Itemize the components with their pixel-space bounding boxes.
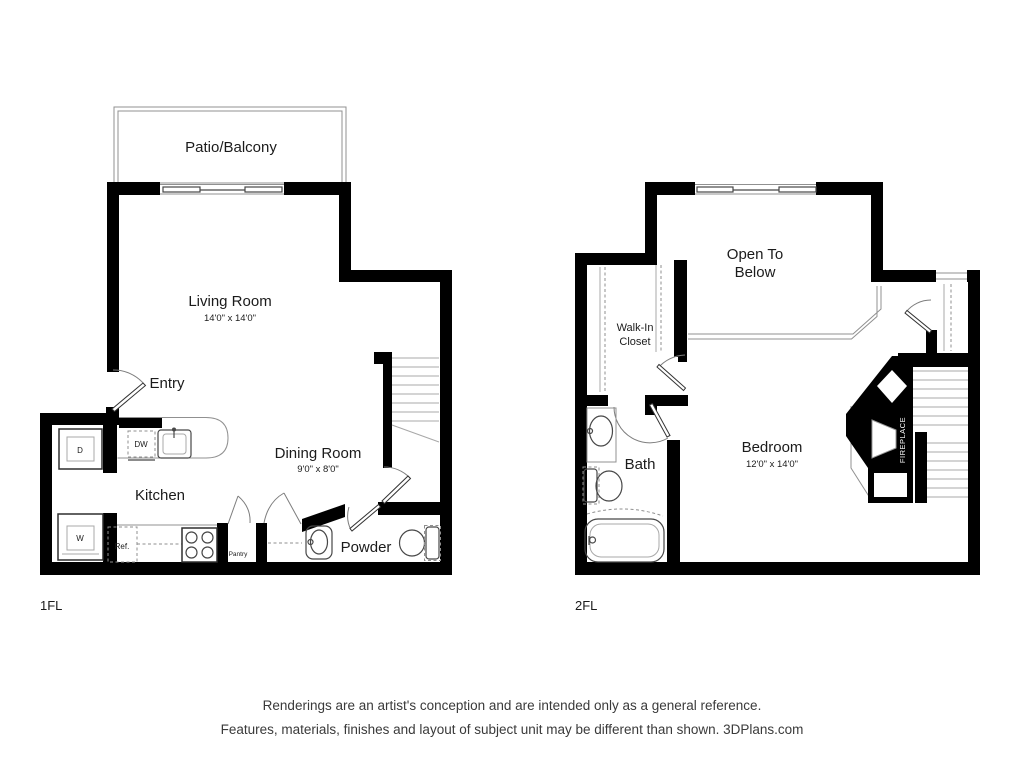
stairs-door xyxy=(382,467,411,504)
entry-door xyxy=(112,370,146,412)
floorplan-page: DW D W Ref. xyxy=(0,0,1024,768)
living-room-label: Living Room xyxy=(188,293,271,310)
walls-1fl xyxy=(40,182,452,575)
footer-line-2: Features, materials, finishes and layout… xyxy=(221,722,804,737)
sliding-door xyxy=(160,185,284,195)
dishwasher: DW xyxy=(128,431,155,457)
powder-door xyxy=(348,505,381,532)
kitchen-sink-icon xyxy=(158,428,191,459)
kitchen-label: Kitchen xyxy=(135,487,185,504)
powder-sink-icon xyxy=(306,526,332,559)
dryer: D xyxy=(59,429,102,469)
dishwasher-label: DW xyxy=(134,440,148,449)
pantry-door xyxy=(228,496,250,524)
walk-in-closet-label-2: Closet xyxy=(619,336,650,348)
dining-room-label: Dining Room xyxy=(275,445,362,462)
open-to-below-label-2: Below xyxy=(735,264,776,281)
patio-label: Patio/Balcony xyxy=(185,139,277,156)
bath-sink-icon xyxy=(587,408,616,462)
washer: W xyxy=(58,514,103,560)
floorplan-2fl: FIREPLACE Open To Below Walk-In Closet B… xyxy=(575,182,980,613)
refrigerator-label: Ref. xyxy=(115,542,130,551)
fireplace-label: FIREPLACE xyxy=(898,417,907,463)
open-to-below-label-1: Open To xyxy=(727,246,783,263)
pantry-label: Pantry xyxy=(229,551,249,558)
bedroom-closet-rods xyxy=(944,284,951,351)
floorplan-1fl: DW D W Ref. xyxy=(40,107,452,613)
powder-label: Powder xyxy=(341,539,392,556)
footer-disclaimer: Renderings are an artist's conception an… xyxy=(221,698,804,737)
footer-line-1: Renderings are an artist's conception an… xyxy=(263,698,762,713)
stairs-1fl xyxy=(392,358,439,442)
entry-label: Entry xyxy=(149,375,185,392)
stove-icon xyxy=(182,528,217,562)
bath-label: Bath xyxy=(625,456,656,473)
bath-toilet-icon xyxy=(583,467,622,504)
dining-room-dims: 9'0" x 8'0" xyxy=(297,464,339,475)
bathtub-icon xyxy=(585,509,664,562)
fireplace: FIREPLACE xyxy=(846,356,913,503)
sliding-window xyxy=(695,185,816,195)
bath-door xyxy=(614,404,670,443)
bedroom-dims: 12'0" x 14'0" xyxy=(746,459,798,470)
railing xyxy=(688,286,881,339)
bedroom-label: Bedroom xyxy=(742,439,803,456)
dryer-label: D xyxy=(77,446,83,455)
living-room-dims: 14'0" x 14'0" xyxy=(204,313,256,324)
hall-door xyxy=(264,493,302,543)
floor2-label: 2FL xyxy=(575,598,597,613)
closet-window xyxy=(936,273,967,279)
floorplan-canvas: DW D W Ref. xyxy=(0,0,1024,768)
powder-toilet-icon xyxy=(400,526,441,561)
floor1-label: 1FL xyxy=(40,598,62,613)
bedroom-closet-door xyxy=(905,300,932,333)
walls-2fl xyxy=(575,182,980,575)
walk-in-closet-label-1: Walk-In xyxy=(617,322,654,334)
washer-label: W xyxy=(76,534,84,543)
